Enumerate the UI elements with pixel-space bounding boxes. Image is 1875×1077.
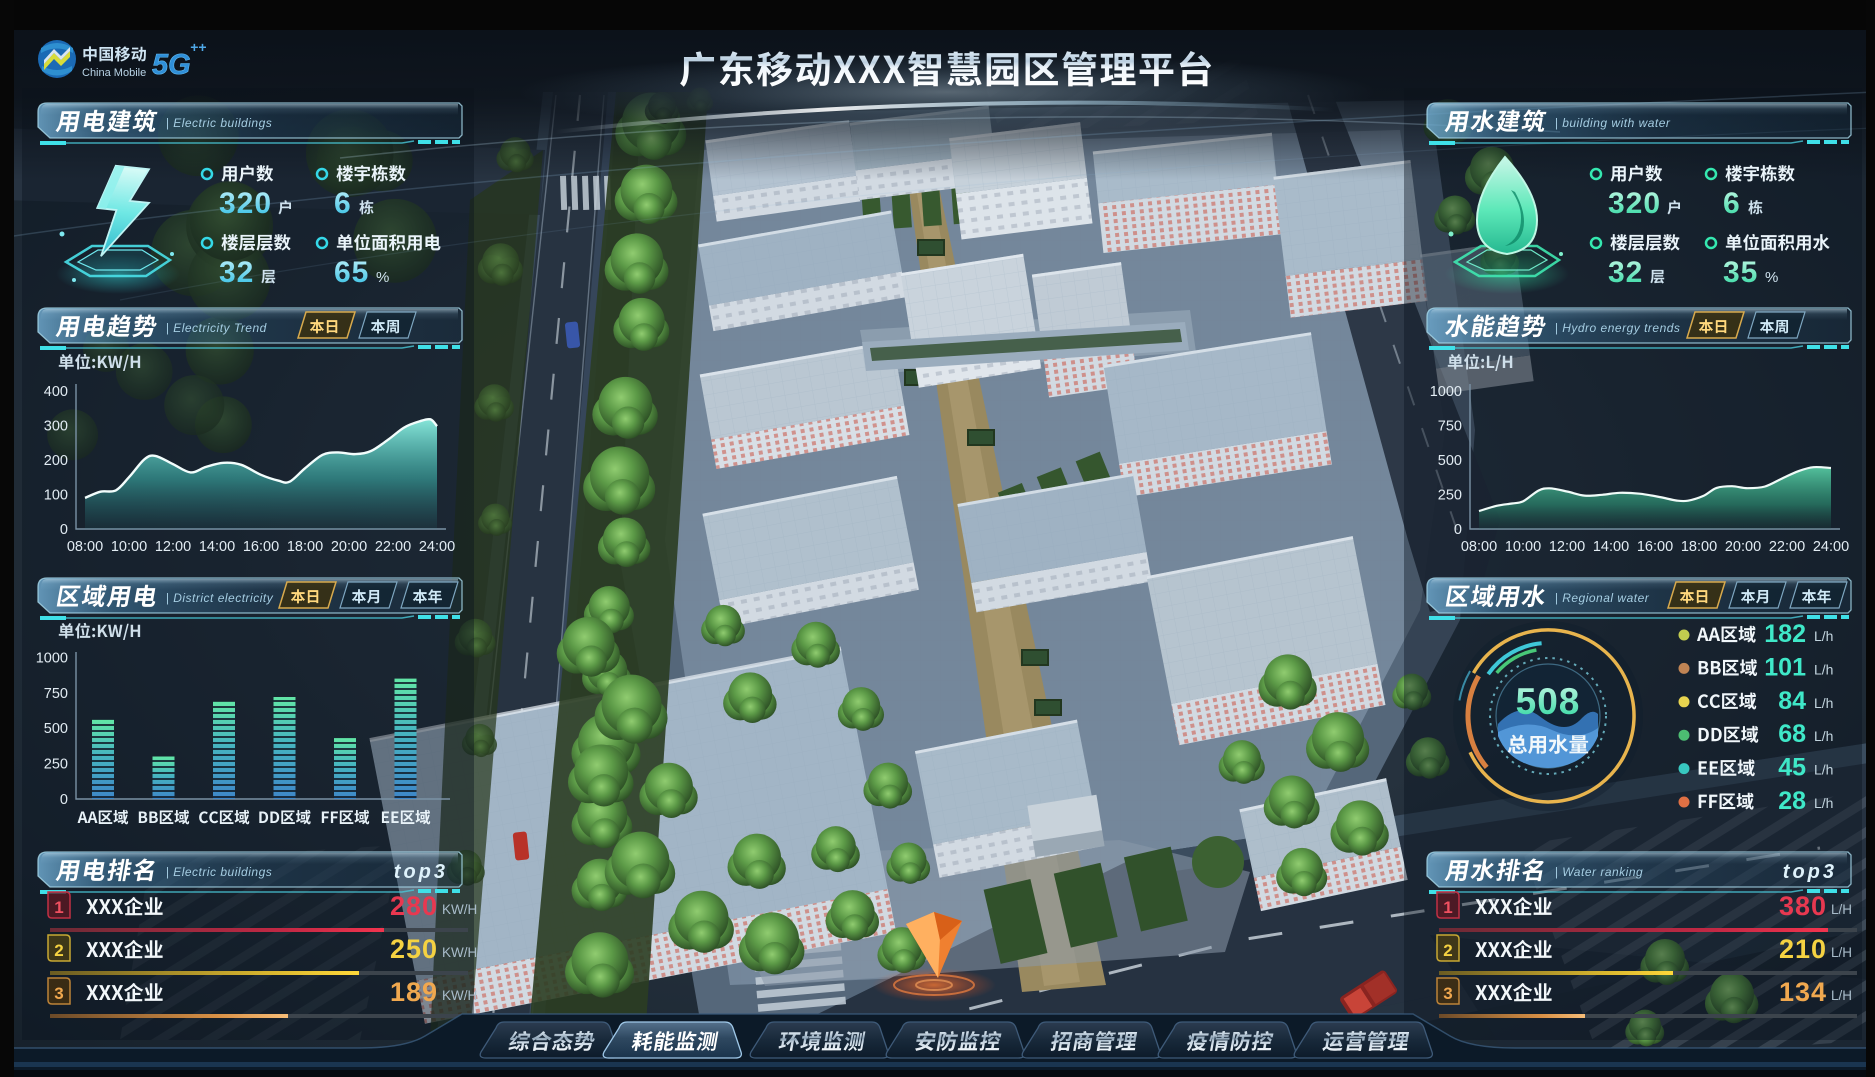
svg-text:20:00: 20:00 [1725, 539, 1761, 555]
svg-text:| building with water: | building with water [1555, 116, 1671, 130]
svg-text:68: 68 [1778, 720, 1806, 748]
svg-text:250: 250 [1438, 488, 1462, 504]
svg-text:6: 6 [1723, 187, 1741, 220]
svg-text:0: 0 [60, 792, 68, 808]
svg-text:32: 32 [219, 256, 254, 289]
svg-text:L/h: L/h [1814, 695, 1833, 711]
svg-text:China Mobile: China Mobile [82, 67, 146, 79]
svg-text:12:00: 12:00 [155, 539, 191, 555]
svg-text:KW/H: KW/H [442, 988, 477, 1003]
svg-text:16:00: 16:00 [243, 539, 279, 555]
svg-text:6: 6 [334, 187, 352, 220]
svg-text:101: 101 [1764, 653, 1806, 681]
svg-text:L/H: L/H [1831, 902, 1852, 917]
svg-text:250: 250 [390, 934, 438, 964]
svg-text:%: % [1765, 269, 1778, 286]
svg-text:24:00: 24:00 [1813, 539, 1849, 555]
svg-text:28: 28 [1778, 787, 1806, 815]
svg-text:16:00: 16:00 [1637, 539, 1673, 555]
svg-text:210: 210 [1779, 934, 1827, 964]
svg-text:2: 2 [54, 941, 63, 960]
svg-text:L/h: L/h [1814, 795, 1833, 811]
svg-text:45: 45 [1778, 754, 1806, 782]
svg-text:3: 3 [54, 984, 63, 1003]
svg-text:KW/H: KW/H [442, 945, 477, 960]
svg-text:L/h: L/h [1814, 762, 1833, 778]
svg-text:500: 500 [44, 721, 68, 737]
svg-text:320: 320 [1608, 187, 1661, 220]
svg-text:10:00: 10:00 [111, 539, 147, 555]
svg-text:5G: 5G [152, 49, 191, 81]
svg-text:32: 32 [1608, 256, 1643, 289]
svg-text:24:00: 24:00 [419, 539, 455, 555]
svg-text:3: 3 [1443, 984, 1452, 1003]
svg-text:18:00: 18:00 [1681, 539, 1717, 555]
svg-text:1: 1 [54, 898, 63, 917]
svg-text:84: 84 [1778, 687, 1806, 715]
svg-text:| Regional water: | Regional water [1555, 591, 1650, 605]
svg-text:| Electricity Trend: | Electricity Trend [166, 321, 267, 335]
svg-text:2: 2 [1443, 941, 1452, 960]
svg-text:65: 65 [334, 256, 369, 289]
svg-text:300: 300 [44, 419, 68, 435]
svg-text:400: 400 [44, 384, 68, 400]
svg-text:22:00: 22:00 [1769, 539, 1805, 555]
svg-text:134: 134 [1779, 977, 1827, 1007]
svg-text:14:00: 14:00 [1593, 539, 1629, 555]
svg-text:750: 750 [44, 686, 68, 702]
svg-text:182: 182 [1764, 620, 1806, 648]
svg-text:%: % [376, 269, 389, 286]
svg-text:L/h: L/h [1814, 628, 1833, 644]
svg-text:top3: top3 [1783, 861, 1837, 883]
svg-text:35: 35 [1723, 256, 1758, 289]
svg-text:380: 380 [1779, 891, 1827, 921]
svg-text:10:00: 10:00 [1505, 539, 1541, 555]
svg-text:L/H: L/H [1831, 988, 1852, 1003]
svg-text:1000: 1000 [36, 650, 68, 666]
svg-text:0: 0 [60, 522, 68, 538]
svg-text:320: 320 [219, 187, 272, 220]
svg-text:| Hydro energy trends: | Hydro energy trends [1555, 321, 1681, 335]
svg-text:1000: 1000 [1430, 384, 1462, 400]
svg-text:L/h: L/h [1814, 728, 1833, 744]
svg-text:| Electric buildings: | Electric buildings [166, 116, 273, 130]
svg-text:top3: top3 [394, 861, 448, 883]
svg-text:1: 1 [1443, 898, 1452, 917]
svg-text:++: ++ [190, 39, 206, 55]
svg-text:18:00: 18:00 [287, 539, 323, 555]
svg-text:189: 189 [390, 977, 438, 1007]
svg-text:750: 750 [1438, 419, 1462, 435]
svg-text:KW/H: KW/H [442, 902, 477, 917]
svg-text:08:00: 08:00 [67, 539, 103, 555]
svg-text:500: 500 [1438, 453, 1462, 469]
svg-text:08:00: 08:00 [1461, 539, 1497, 555]
svg-text:| Electric buildings: | Electric buildings [166, 865, 273, 879]
svg-text:L/H: L/H [1831, 945, 1852, 960]
svg-text:| Water ranking: | Water ranking [1555, 865, 1643, 879]
svg-text:508: 508 [1516, 681, 1581, 722]
svg-text:0: 0 [1454, 522, 1462, 538]
svg-text:| District electricity: | District electricity [166, 591, 274, 605]
svg-text:22:00: 22:00 [375, 539, 411, 555]
svg-text:20:00: 20:00 [331, 539, 367, 555]
svg-text:L/h: L/h [1814, 661, 1833, 677]
svg-text:12:00: 12:00 [1549, 539, 1585, 555]
svg-text:250: 250 [44, 757, 68, 773]
svg-text:280: 280 [390, 891, 438, 921]
svg-text:200: 200 [44, 453, 68, 469]
svg-text:14:00: 14:00 [199, 539, 235, 555]
svg-text:100: 100 [44, 488, 68, 504]
